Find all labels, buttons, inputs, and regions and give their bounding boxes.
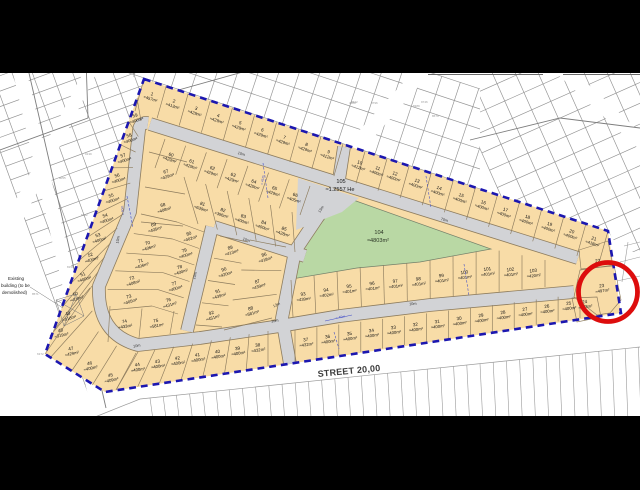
svg-text:10m: 10m (409, 302, 417, 307)
svg-text:104: 104 (374, 230, 383, 236)
svg-text:6372: 6372 (37, 352, 44, 356)
svg-text:4488: 4488 (349, 101, 356, 105)
svg-text:Existing: Existing (8, 276, 25, 281)
svg-text:≈4803m²: ≈4803m² (367, 238, 389, 244)
svg-text:building (to be: building (to be (1, 283, 30, 288)
svg-text:≈ 40m: ≈ 40m (120, 205, 125, 215)
svg-text:8571: 8571 (32, 292, 39, 296)
svg-text:6802: 6802 (81, 213, 88, 217)
svg-text:105: 105 (336, 179, 345, 185)
svg-text:8679: 8679 (432, 114, 439, 118)
svg-text:8796: 8796 (371, 101, 378, 105)
svg-text:8055: 8055 (59, 176, 66, 180)
svg-text:9139: 9139 (85, 152, 92, 156)
svg-text:demolished): demolished) (2, 290, 27, 295)
svg-text:9746: 9746 (421, 100, 428, 104)
svg-text:8156: 8156 (67, 265, 74, 269)
svg-text:≈1.2557 He: ≈1.2557 He (326, 187, 355, 193)
svg-text:8389: 8389 (413, 104, 420, 108)
